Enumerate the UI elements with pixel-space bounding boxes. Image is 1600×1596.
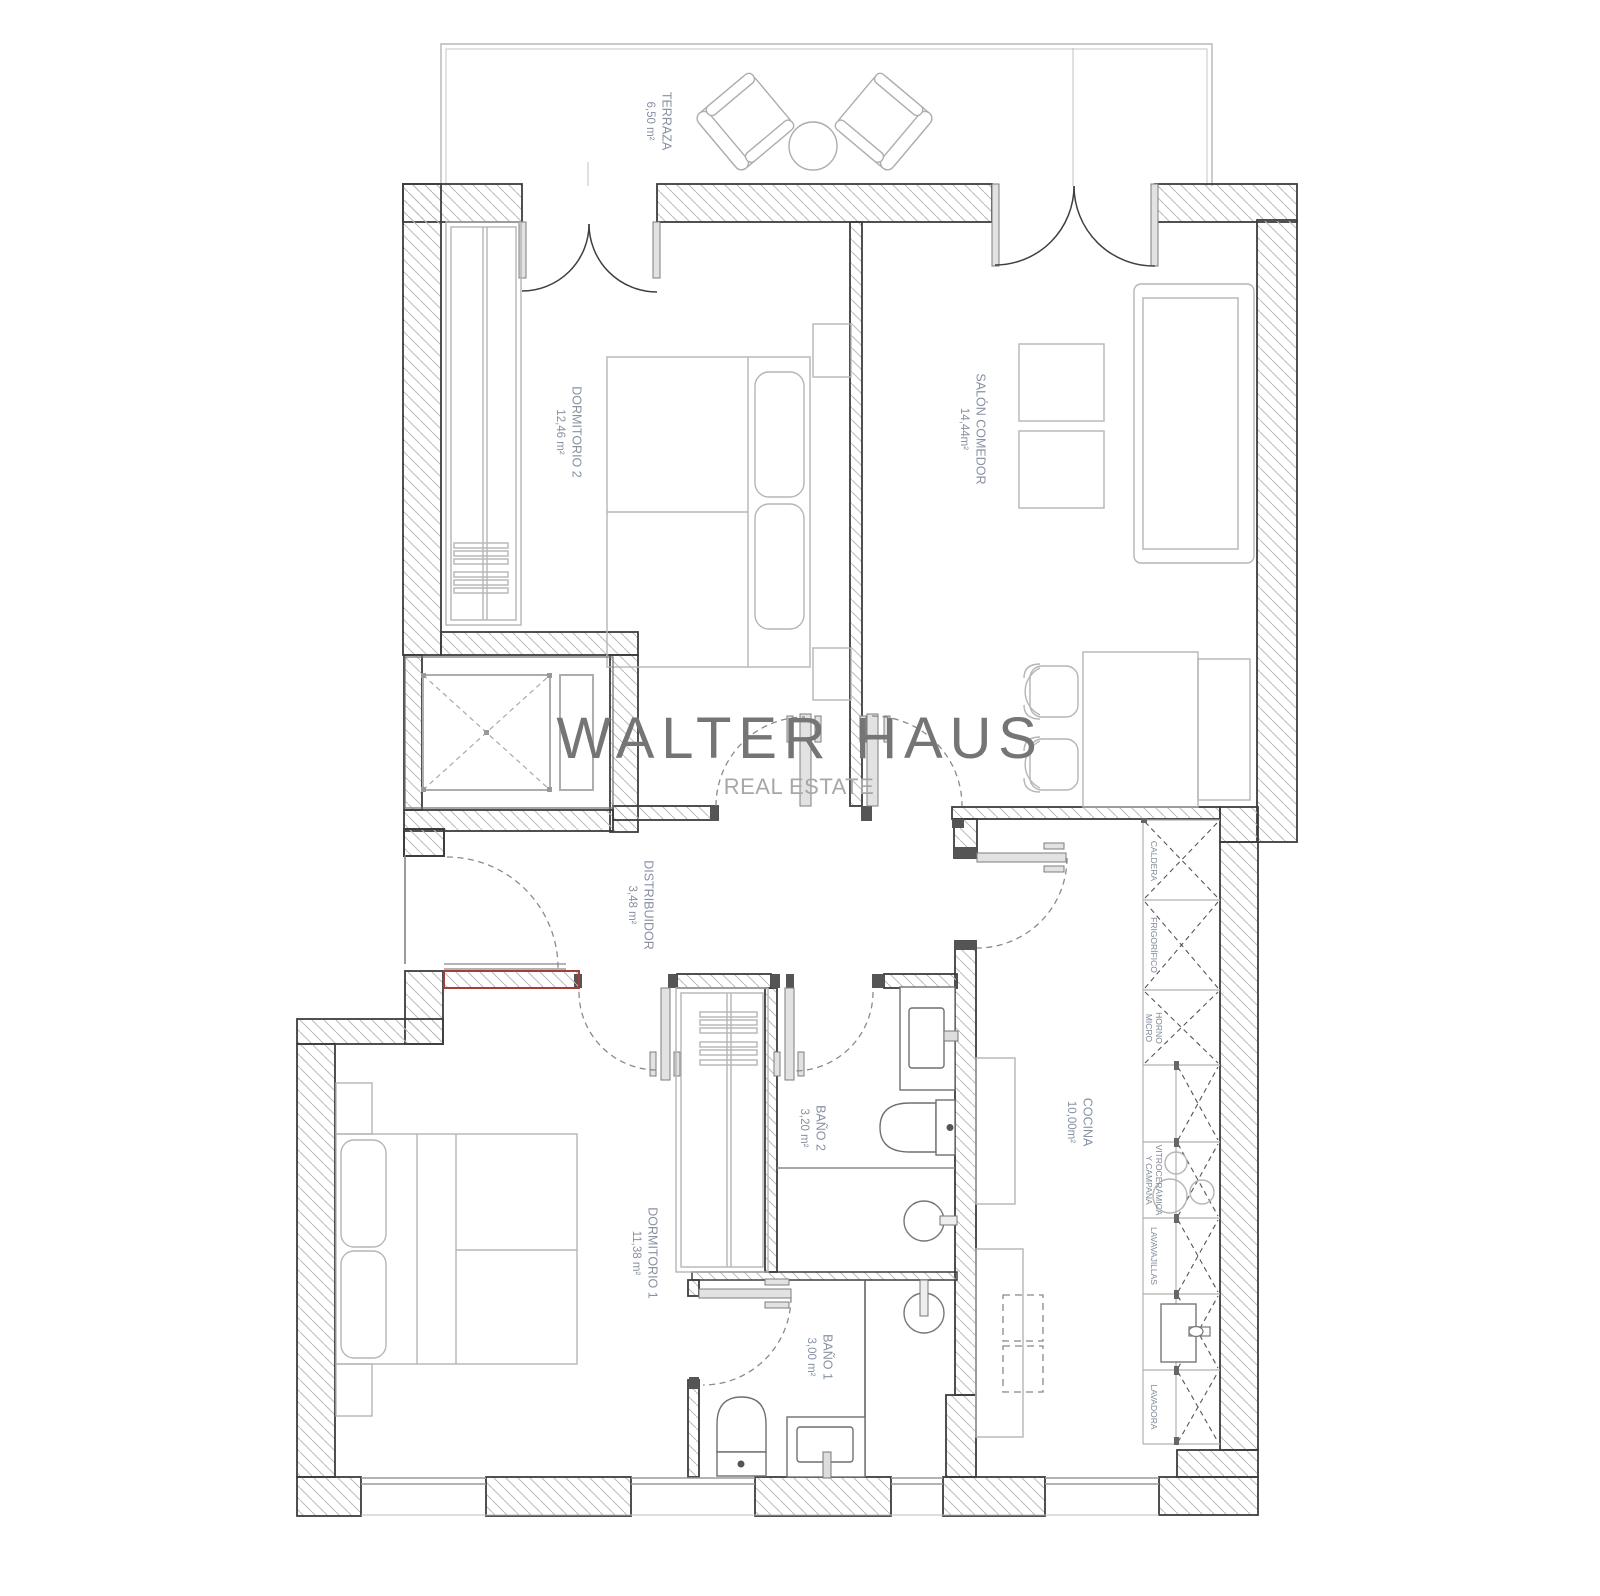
svg-text:LAVAVAJILLAS: LAVAVAJILLAS <box>1149 1227 1159 1285</box>
svg-text:REAL ESTATE: REAL ESTATE <box>724 774 875 799</box>
svg-text:TERRAZA: TERRAZA <box>660 92 674 151</box>
svg-text:FRIGORÍFICO: FRIGORÍFICO <box>1149 917 1159 973</box>
svg-text:10,00m²: 10,00m² <box>1065 1101 1077 1143</box>
svg-text:DISTRIBUIDOR: DISTRIBUIDOR <box>642 860 656 950</box>
svg-text:6,50 m²: 6,50 m² <box>644 102 656 141</box>
svg-text:LAVADORA: LAVADORA <box>1149 1384 1159 1429</box>
svg-text:SALÓN COMEDOR: SALÓN COMEDOR <box>974 373 989 484</box>
svg-text:WALTER HAUS: WALTER HAUS <box>556 706 1043 771</box>
svg-text:3,20 m²: 3,20 m² <box>798 1109 810 1148</box>
svg-text:12,46 m²: 12,46 m² <box>554 409 566 455</box>
svg-text:Y CAMPANA: Y CAMPANA <box>1144 1155 1154 1205</box>
svg-text:11,38 m²: 11,38 m² <box>630 1231 642 1276</box>
svg-text:DORMITORIO 1: DORMITORIO 1 <box>646 1207 660 1298</box>
svg-text:DORMITORIO 2: DORMITORIO 2 <box>570 386 584 477</box>
svg-text:3,00 m²: 3,00 m² <box>805 1338 817 1377</box>
svg-text:BAÑO 1: BAÑO 1 <box>821 1334 835 1380</box>
svg-text:3,48 m²: 3,48 m² <box>626 886 638 925</box>
svg-text:COCINA: COCINA <box>1081 1098 1095 1147</box>
svg-text:MICRO: MICRO <box>1144 1014 1154 1043</box>
svg-text:CALDERA: CALDERA <box>1149 841 1159 881</box>
svg-text:HORNO: HORNO <box>1154 1012 1164 1044</box>
svg-text:BAÑO 2: BAÑO 2 <box>814 1105 828 1151</box>
svg-text:VITROCERÁMICA: VITROCERÁMICA <box>1154 1145 1164 1216</box>
svg-text:14,44m²: 14,44m² <box>958 408 970 450</box>
